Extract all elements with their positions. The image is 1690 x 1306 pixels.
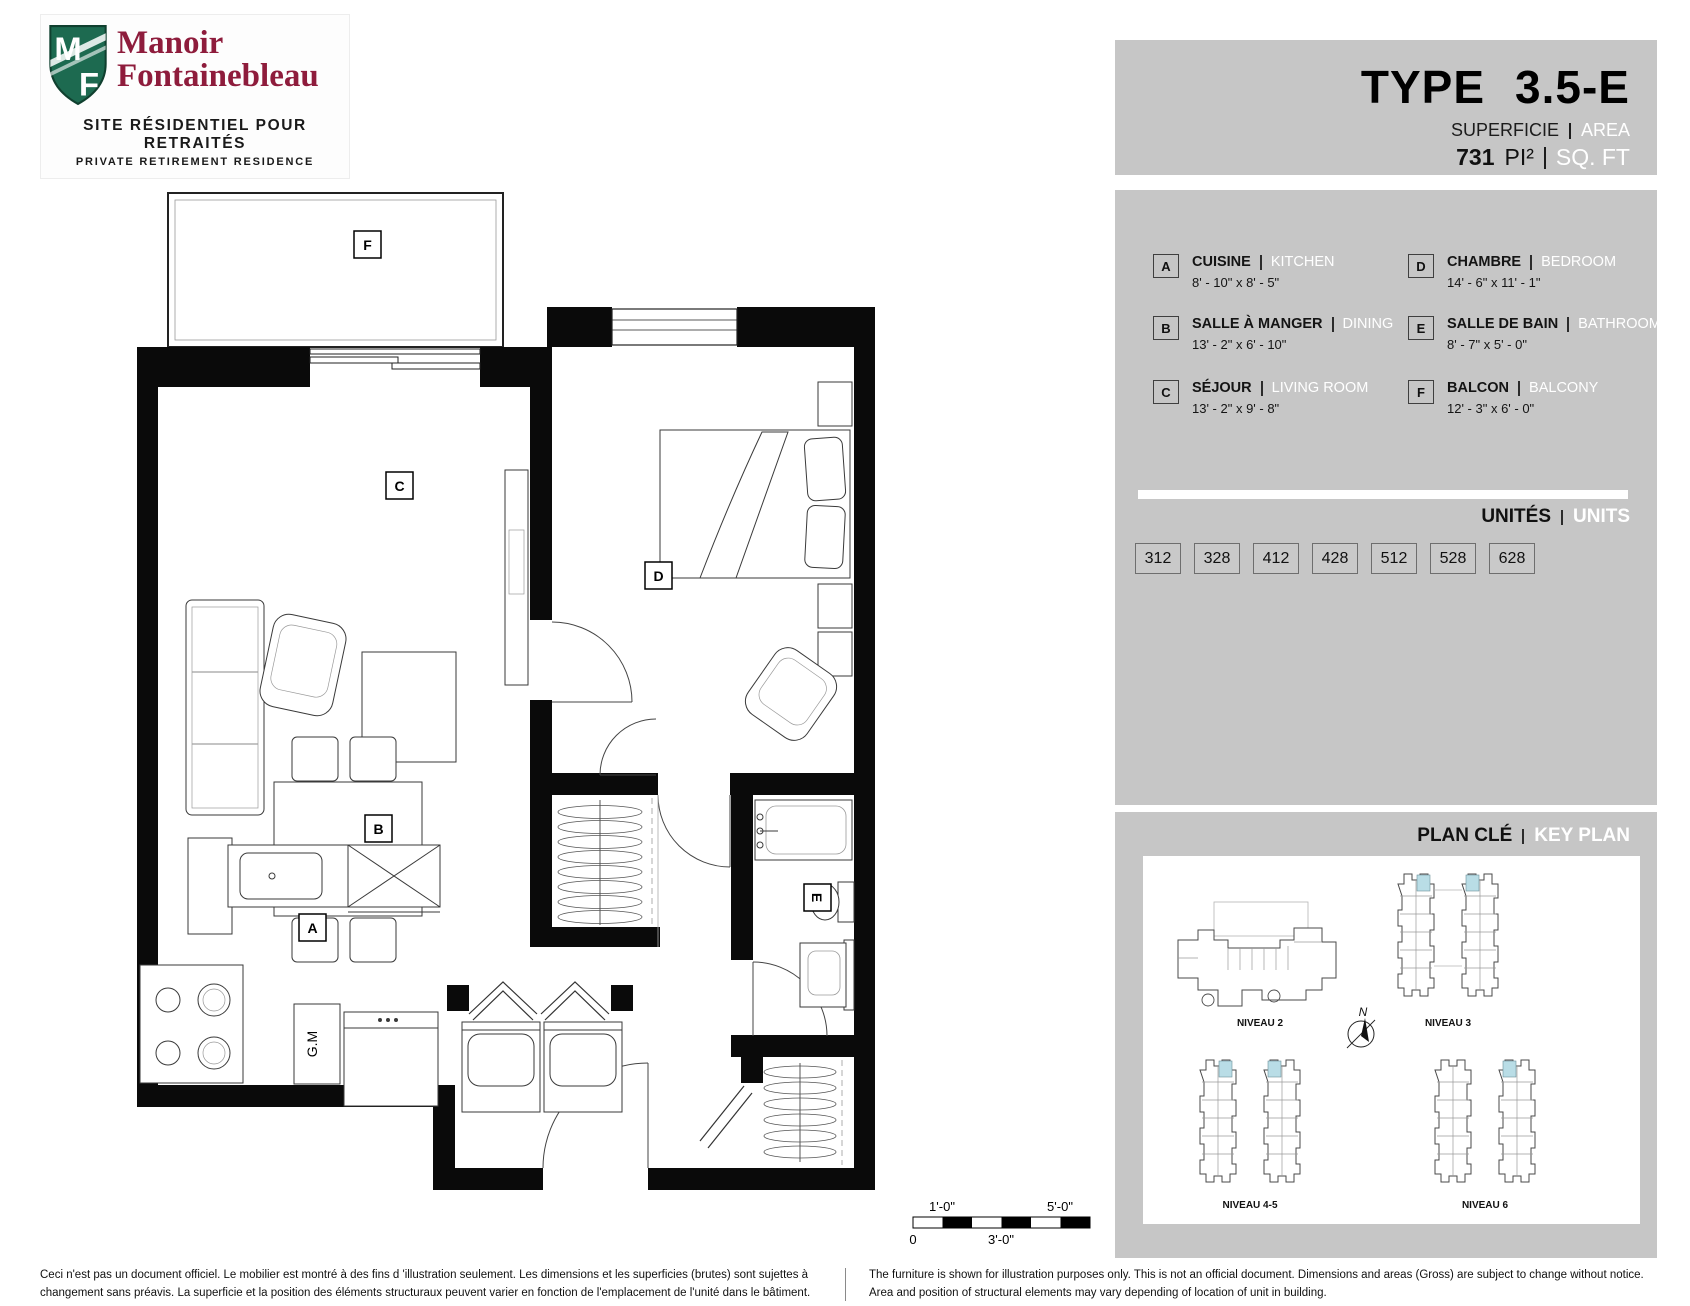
closet-bifold-doors bbox=[700, 1086, 752, 1148]
divider-bar bbox=[1569, 123, 1571, 139]
label-dining: B bbox=[373, 821, 383, 837]
room-letter-box: A bbox=[1153, 254, 1179, 278]
niveau-3-building bbox=[1398, 874, 1498, 996]
floor-plan-page: M F Manoir Fontainebleau SITE RÉSIDENTIE… bbox=[0, 0, 1690, 1306]
scale-label-1ft: 1'-0" bbox=[929, 1199, 955, 1214]
divider-bar bbox=[1530, 255, 1532, 270]
unit-number: 628 bbox=[1489, 543, 1535, 574]
niveau-6-building bbox=[1435, 1060, 1535, 1182]
legend-row-bathroom: E SALLE DE BAIN BATHROOM 8' - 7" x 5' - … bbox=[1408, 316, 1661, 352]
hall-closet-hangers bbox=[558, 795, 658, 947]
divider-bar bbox=[1332, 317, 1334, 332]
unit-number: 412 bbox=[1253, 543, 1299, 574]
kitchen-fixtures bbox=[140, 845, 440, 1106]
niveau-4-5-building bbox=[1200, 1060, 1300, 1182]
compass-icon: N bbox=[1347, 1005, 1375, 1048]
type-title: TYPE 3.5-E bbox=[1115, 40, 1657, 114]
divider-bar bbox=[1260, 255, 1262, 270]
divider-bar bbox=[1544, 147, 1546, 169]
scale-label-3ft: 3'-0" bbox=[988, 1232, 1014, 1247]
room-name-en: BALCONY bbox=[1529, 380, 1598, 396]
label-kitchen: A bbox=[307, 920, 317, 936]
compass-north-label: N bbox=[1359, 1005, 1368, 1019]
balcony-sliding-door bbox=[310, 349, 480, 369]
logo-tagline-en: PRIVATE RETIREMENT RESIDENCE bbox=[47, 156, 343, 168]
scale-label-5ft: 5'-0" bbox=[1047, 1199, 1073, 1214]
room-name-en: BEDROOM bbox=[1541, 254, 1616, 270]
legend-row-bedroom: D CHAMBRE BEDROOM 14' - 6" x 11' - 1" bbox=[1408, 254, 1616, 290]
room-name-en: DINING bbox=[1343, 316, 1394, 332]
washer-dryer bbox=[462, 1022, 622, 1112]
legend-row-living: C SÉJOUR LIVING ROOM 13' - 2" x 9' - 8" bbox=[1153, 380, 1368, 416]
type-label: TYPE bbox=[1361, 60, 1485, 114]
divider-bar bbox=[1561, 510, 1563, 525]
type-header-panel: TYPE 3.5-E SUPERFICIE AREA 731 PI² SQ. F… bbox=[1115, 40, 1657, 175]
key-plan-panel: PLAN CLÉ KEY PLAN bbox=[1115, 812, 1657, 1258]
disclaimer-fr-line1: Ceci n'est pas un document officiel. Le … bbox=[40, 1266, 810, 1284]
label-balcony: F bbox=[363, 237, 372, 253]
legend-row-kitchen: A CUISINE KITCHEN 8' - 10" x 8' - 5" bbox=[1153, 254, 1334, 290]
logo-name-line2: Fontainebleau bbox=[117, 60, 319, 93]
units-heading: UNITÉS UNITS bbox=[1481, 506, 1630, 528]
area-unit-fr: PI² bbox=[1504, 144, 1533, 171]
unit-number: 528 bbox=[1430, 543, 1476, 574]
highlighted-unit bbox=[1268, 1061, 1281, 1077]
divider-bar bbox=[1522, 829, 1524, 844]
key-plan-title-fr: PLAN CLÉ bbox=[1417, 825, 1512, 847]
room-dimensions: 13' - 2" x 9' - 8" bbox=[1192, 401, 1368, 416]
unit-number: 512 bbox=[1371, 543, 1417, 574]
room-letter-box: C bbox=[1153, 380, 1179, 404]
room-name-fr: SALLE À MANGER bbox=[1192, 316, 1323, 332]
room-letter-box: D bbox=[1408, 254, 1434, 278]
room-name-fr: BALCON bbox=[1447, 380, 1509, 396]
floor-plan-drawing: F C D B A E G.M 1'-0" 5'-0" bbox=[125, 180, 1100, 1255]
disclaimer-en-line2: Area and position of structural elements… bbox=[869, 1284, 1644, 1302]
label-bathroom: E bbox=[809, 893, 825, 902]
niveau-6-label: NIVEAU 6 bbox=[1462, 1200, 1509, 1211]
highlighted-unit bbox=[1417, 875, 1430, 891]
room-letter-box: B bbox=[1153, 316, 1179, 340]
room-dimensions: 12' - 3" x 6' - 0" bbox=[1447, 401, 1598, 416]
legend-panel: A CUISINE KITCHEN 8' - 10" x 8' - 5" B S… bbox=[1115, 190, 1657, 805]
units-label-fr: UNITÉS bbox=[1481, 506, 1551, 528]
divider-bar bbox=[1261, 381, 1263, 396]
label-gm: G.M bbox=[304, 1031, 320, 1057]
key-plan-canvas: NIVEAU 2 NIVEAU 3 N bbox=[1143, 856, 1640, 1224]
room-dimensions: 8' - 7" x 5' - 0" bbox=[1447, 337, 1661, 352]
logo: M F Manoir Fontainebleau SITE RÉSIDENTIE… bbox=[40, 14, 350, 179]
disclaimer-en: The furniture is shown for illustration … bbox=[869, 1266, 1644, 1302]
area-unit-en: SQ. FT bbox=[1556, 144, 1630, 171]
room-name-fr: SALLE DE BAIN bbox=[1447, 316, 1558, 332]
disclaimer-fr-line2: changement sans préavis. La superficie e… bbox=[40, 1284, 810, 1302]
legend-row-balcony: F BALCON BALCONY 12' - 3" x 6' - 0" bbox=[1408, 380, 1598, 416]
area-value-row: 731 PI² SQ. FT bbox=[1115, 141, 1657, 171]
highlighted-unit bbox=[1466, 875, 1479, 891]
unit-number: 312 bbox=[1135, 543, 1181, 574]
legend-row-dining: B SALLE À MANGER DINING 13' - 2" x 6' - … bbox=[1153, 316, 1393, 352]
bedroom-window bbox=[612, 309, 737, 345]
room-letter-box: E bbox=[1408, 316, 1434, 340]
scale-label-0: 0 bbox=[909, 1232, 916, 1247]
room-name-en: KITCHEN bbox=[1271, 254, 1335, 270]
room-name-en: BATHROOM bbox=[1578, 316, 1661, 332]
disclaimer-divider bbox=[845, 1268, 846, 1301]
unit-number: 328 bbox=[1194, 543, 1240, 574]
label-living: C bbox=[394, 478, 404, 494]
svg-text:F: F bbox=[79, 66, 99, 103]
room-dimensions: 8' - 10" x 8' - 5" bbox=[1192, 275, 1334, 290]
scale-bar: 1'-0" 5'-0" 0 3'-0" bbox=[909, 1199, 1090, 1247]
disclaimer-en-line1: The furniture is shown for illustration … bbox=[869, 1266, 1644, 1284]
highlighted-unit bbox=[1219, 1061, 1232, 1077]
laundry-bifold-doors bbox=[469, 982, 609, 1020]
room-name-en: LIVING ROOM bbox=[1272, 380, 1369, 396]
room-dimensions: 13' - 2" x 6' - 10" bbox=[1192, 337, 1393, 352]
units-label-en: UNITS bbox=[1573, 506, 1630, 528]
logo-name-line1: Manoir bbox=[117, 27, 319, 60]
logo-tagline-fr: SITE RÉSIDENTIEL POUR RETRAITÉS bbox=[47, 117, 343, 153]
key-plan-drawing: NIVEAU 2 NIVEAU 3 N bbox=[1143, 856, 1640, 1224]
divider-bar bbox=[1567, 317, 1569, 332]
room-dimensions: 14' - 6" x 11' - 1" bbox=[1447, 275, 1616, 290]
superficie-row: SUPERFICIE AREA bbox=[1115, 114, 1657, 141]
bedroom-furniture bbox=[660, 382, 852, 747]
label-bedroom: D bbox=[653, 568, 663, 584]
niveau-4-5-label: NIVEAU 4-5 bbox=[1222, 1200, 1277, 1211]
balcony-outline bbox=[168, 193, 503, 347]
area-value: 731 bbox=[1456, 144, 1494, 171]
floor-plan: F C D B A E G.M 1'-0" 5'-0" bbox=[125, 180, 1100, 1260]
entry-closet-hangers bbox=[764, 1060, 842, 1165]
niveau-2-label: NIVEAU 2 bbox=[1237, 1018, 1284, 1029]
shield-logo-icon: M F bbox=[47, 23, 109, 107]
niveau-3-label: NIVEAU 3 bbox=[1425, 1018, 1472, 1029]
key-plan-title-en: KEY PLAN bbox=[1534, 825, 1630, 847]
room-letter-box: F bbox=[1408, 380, 1434, 404]
area-label: AREA bbox=[1581, 120, 1630, 141]
room-name-fr: SÉJOUR bbox=[1192, 380, 1252, 396]
disclaimer-fr: Ceci n'est pas un document officiel. Le … bbox=[40, 1266, 810, 1302]
type-value: 3.5-E bbox=[1515, 60, 1630, 114]
highlighted-unit bbox=[1503, 1061, 1516, 1077]
svg-text:M: M bbox=[54, 30, 81, 67]
divider-bar bbox=[1518, 381, 1520, 396]
superficie-label: SUPERFICIE bbox=[1451, 120, 1559, 141]
room-name-fr: CUISINE bbox=[1192, 254, 1251, 270]
key-plan-heading: PLAN CLÉ KEY PLAN bbox=[1417, 825, 1630, 847]
unit-number-row: 312 328 412 428 512 528 628 bbox=[1135, 543, 1535, 574]
units-divider-line bbox=[1138, 490, 1628, 499]
logo-name: Manoir Fontainebleau bbox=[117, 27, 319, 93]
unit-number: 428 bbox=[1312, 543, 1358, 574]
room-name-fr: CHAMBRE bbox=[1447, 254, 1521, 270]
niveau-2-building bbox=[1178, 902, 1336, 1006]
